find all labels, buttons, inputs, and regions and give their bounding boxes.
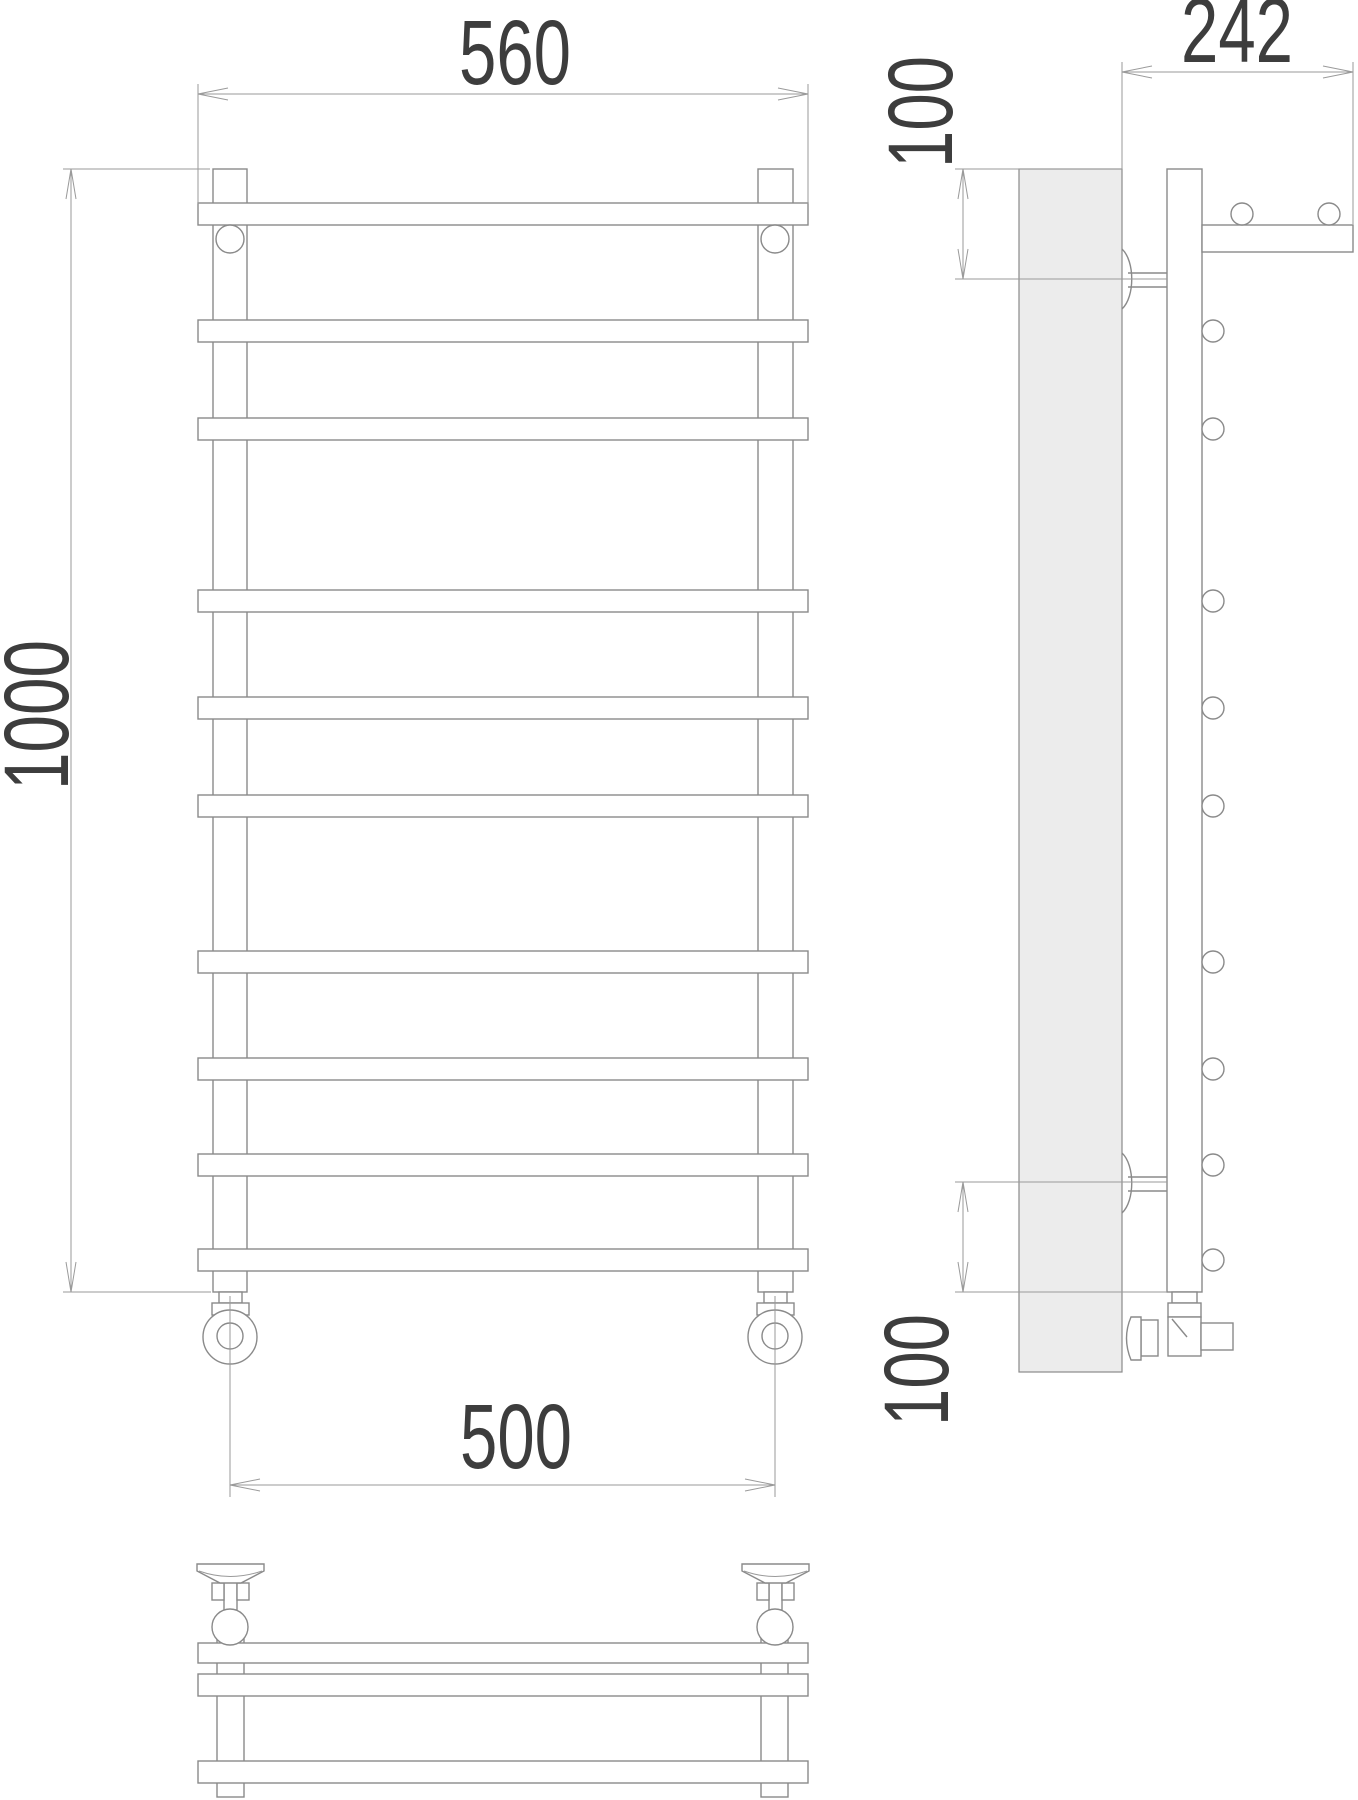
dimension-overall-height: 1000 xyxy=(0,169,211,1292)
shelf-bar-section xyxy=(1231,203,1253,225)
top-rung-bar xyxy=(198,1643,808,1663)
front-view xyxy=(198,169,808,1364)
shelf-bar xyxy=(198,1674,808,1696)
side-view xyxy=(1019,169,1353,1372)
dimension-shelf-depth: 242 xyxy=(1122,0,1353,224)
dim-label-500: 500 xyxy=(460,1386,572,1488)
side-valve xyxy=(1127,1292,1234,1360)
top-view xyxy=(197,1564,809,1797)
bracket-flange xyxy=(761,225,789,253)
dim-label-1000: 1000 xyxy=(0,640,88,790)
rung-sections xyxy=(1202,320,1224,1271)
top-view-valve xyxy=(197,1564,264,1645)
dim-label-100-top: 100 xyxy=(870,56,972,168)
dim-label-242: 242 xyxy=(1181,0,1293,82)
wall-bracket-bottom xyxy=(1122,1153,1167,1213)
dimension-width-top: 560 xyxy=(198,2,808,204)
side-vertical-tube xyxy=(1167,169,1202,1292)
drawing-canvas: 560 1000 242 100 100 500 xyxy=(0,0,1358,1800)
bracket-flange xyxy=(216,225,244,253)
dim-label-100-bottom: 100 xyxy=(866,1314,968,1426)
shelf-bar xyxy=(198,1761,808,1783)
dimension-connection-spacing: 500 xyxy=(230,1296,775,1497)
rungs xyxy=(198,203,808,1271)
shelf-bar-section xyxy=(1318,203,1340,225)
wall-section xyxy=(1019,169,1122,1372)
dim-label-560: 560 xyxy=(459,2,571,104)
shelf-bracket-side xyxy=(1202,225,1353,252)
